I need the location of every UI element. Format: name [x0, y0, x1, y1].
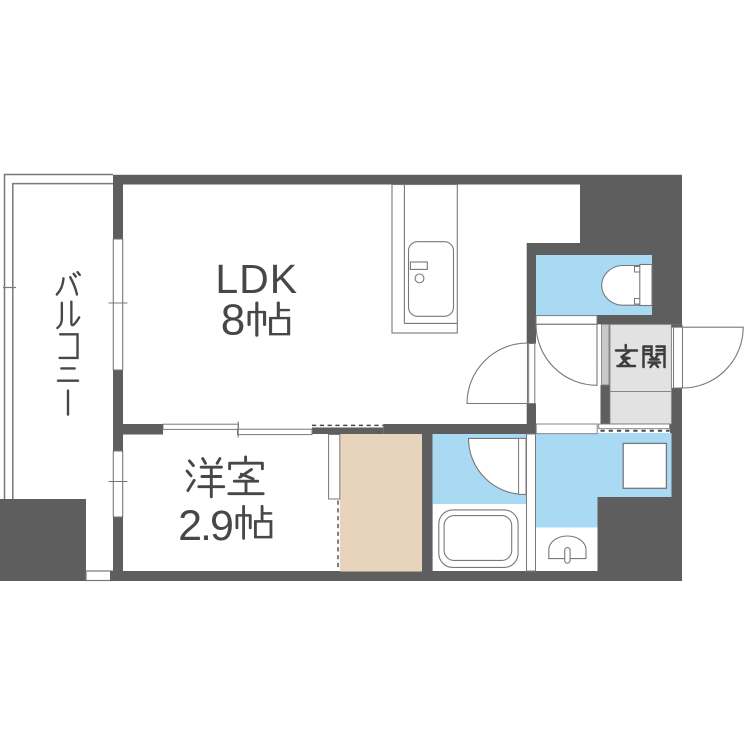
svg-text:2.9: 2.9 — [178, 502, 232, 550]
svg-text:8: 8 — [221, 296, 245, 345]
